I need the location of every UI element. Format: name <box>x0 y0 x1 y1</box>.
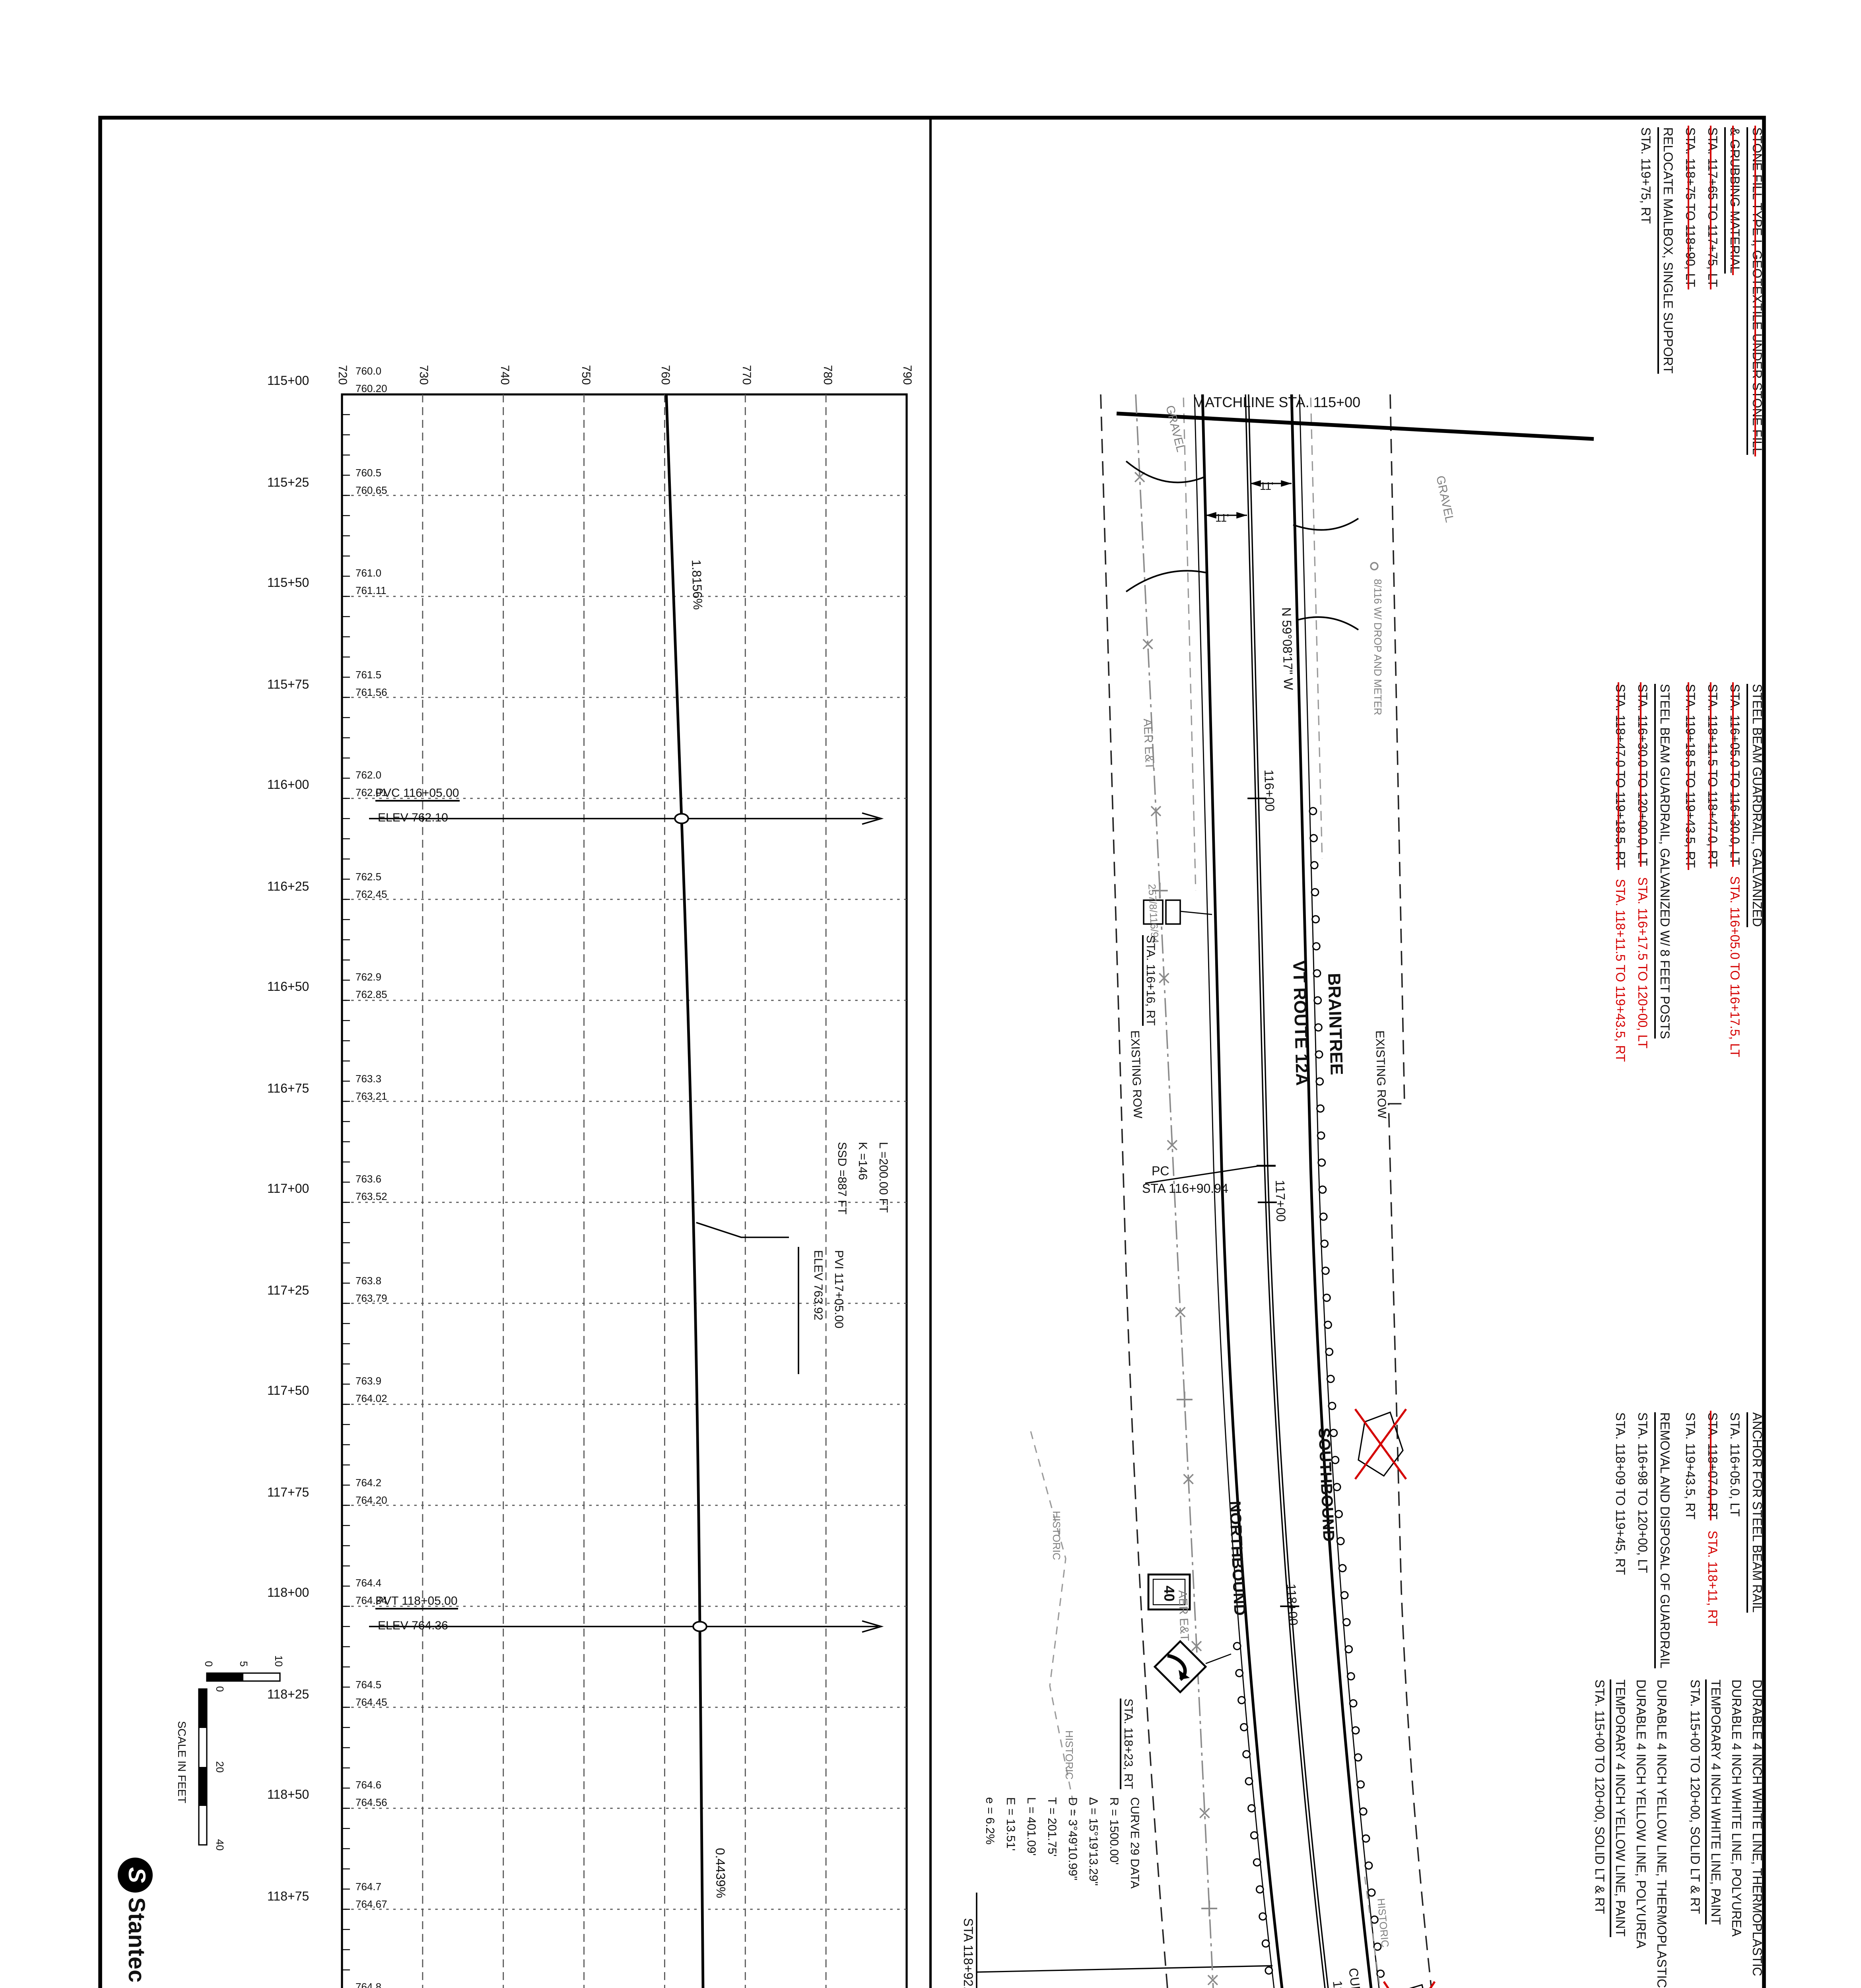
guardrail-8ft-posts-notes: STEEL BEAM GUARDRAIL, GALVANIZED W/ 8 FE… <box>1655 684 1670 1039</box>
profile-grid <box>342 394 907 1988</box>
anchor-notes-line: ANCHOR FOR STEEL BEAM RAIL <box>1747 1412 1762 1613</box>
yellow-line-notes-line: DURABLE 4 INCH YELLOW LINE, THERMOPLASTI… <box>1654 1679 1667 1988</box>
curve-data-row: T = 201.75' <box>1047 1797 1059 1857</box>
speed-limit-value: 40 <box>1161 1586 1175 1602</box>
proposed-elevation: 761.56 <box>356 689 388 699</box>
profile-vscale-tick: 10 <box>272 1644 282 1667</box>
white-line-notes-line: DURABLE 4 INCH WHITE LINE, THERMOPLASTIC <box>1750 1679 1762 1976</box>
proposed-elevation: 764.45 <box>356 1699 388 1709</box>
proposed-elevation: 764.20 <box>356 1497 388 1507</box>
pc-station-label: STA 116+90.94 <box>1142 1183 1228 1196</box>
guardrail-8ft-posts-notes-line: STA. 118+11.5 TO 119+43.5, RT <box>1613 879 1626 1062</box>
proposed-elevation: 764.56 <box>356 1800 388 1810</box>
station-116: 116+00 <box>1261 769 1275 812</box>
elev-axis-left: 730 <box>418 340 430 385</box>
stone-fill-notes-line: STONE FILL TYPE I, GEOTEXTILE UNDER STON… <box>1747 127 1762 455</box>
white-line-notes-line: DURABLE 4 INCH WHITE LINE, POLYUREA <box>1729 1679 1742 1937</box>
removal-notes: STA. 118+09 TO 119+45, RT <box>1613 1412 1626 1575</box>
station-117: 117+00 <box>1272 1180 1286 1222</box>
yellow-line-notes: DURABLE 4 INCH YELLOW LINE, THERMOPLASTI… <box>1654 1679 1667 1988</box>
anchor-notes: ANCHOR FOR STEEL BEAM RAIL <box>1747 1412 1762 1613</box>
profile-station-label: 117+00 <box>267 1183 309 1196</box>
existing-elevation: 762.9 <box>356 974 382 984</box>
profile-station-label: 116+00 <box>267 779 309 792</box>
yellow-line-notes-line: TEMPORARY 4 INCH YELLOW LINE, PAINT <box>1610 1679 1626 1937</box>
yellow-line-notes-line: STA. 115+00 TO 120+00, SOLID LT & RT <box>1592 1679 1605 1914</box>
stone-fill-notes: RELOCATE MAILBOX, SINGLE SUPPORT <box>1658 127 1673 373</box>
existing-elevation: 764.7 <box>356 1883 382 1893</box>
stone-fill-notes-line: STA. 119+75, RT <box>1638 127 1651 224</box>
profile-station-label: 117+25 <box>267 1284 309 1297</box>
white-line-notes: DURABLE 4 INCH WHITE LINE, THERMOPLASTIC <box>1750 1679 1762 1976</box>
lane-width-dim: 11' <box>1215 514 1229 525</box>
proposed-elevation: 763.21 <box>356 1093 388 1103</box>
existing-elevation: 764.2 <box>356 1479 382 1489</box>
sign-callout-116: STA. 116+16, RT <box>1143 935 1157 1026</box>
profile-station-label: 118+75 <box>267 1890 309 1903</box>
existing-elevation: 761.0 <box>356 570 382 580</box>
profile-station-label: 116+75 <box>267 1082 309 1095</box>
profile-scale-tick: 0 <box>213 1686 223 1692</box>
profile-station-label: 115+00 <box>267 375 309 388</box>
stantec-logo: S Stantec <box>118 1858 153 1983</box>
profile-station-label: 118+50 <box>267 1789 309 1802</box>
stantec-logo-text: Stantec <box>122 1897 148 1983</box>
existing-elevation: 761.5 <box>356 671 382 681</box>
pvi-callout-elev: ELEV 763.92 <box>813 1250 825 1320</box>
profile-station-label: 116+25 <box>267 880 309 893</box>
anchor-notes: STA. 118+07.0, RTSTA. 118+11, RT <box>1705 1412 1718 1626</box>
existing-elevation: 763.8 <box>356 1277 382 1287</box>
vc-callout-elev: ELEV 762.10 <box>379 812 449 823</box>
guardrail-galvanized-notes: STA. 119+18.5 TO 119+43.5, RT <box>1683 684 1696 868</box>
stantec-logo-icon: S <box>118 1858 153 1893</box>
guardrail-galvanized-notes-line: STA. 116+05.0 TO 116+30.0, LT <box>1727 684 1740 865</box>
curve-data-row: Δ = 15°19'13.29" <box>1088 1797 1100 1886</box>
profile-vscale-tick: 5 <box>237 1644 247 1667</box>
existing-elevation: 763.9 <box>356 1378 382 1388</box>
guardrail-8ft-posts-notes-line: STA. 116+17.5 TO 120+00, LT <box>1635 877 1648 1048</box>
stone-fill-notes: STA. 119+75, RT <box>1638 127 1651 224</box>
existing-elevation: 762.0 <box>356 772 382 782</box>
grade-percent: 0.4439% <box>713 1848 726 1898</box>
pvi-callout: PVI 117+05.00 <box>833 1250 845 1328</box>
profile-station-label: 115+50 <box>267 577 309 590</box>
yellow-line-notes: TEMPORARY 4 INCH YELLOW LINE, PAINT <box>1610 1679 1626 1937</box>
service-drop-label: 8/116 W/ DROP AND METER <box>1371 579 1381 715</box>
guardrail-galvanized-notes: STA. 116+05.0 TO 116+30.0, LTSTA. 116+05… <box>1727 684 1740 1057</box>
profile-station-label: 116+50 <box>267 981 309 994</box>
vc-data: K =146 <box>857 1142 869 1180</box>
guardrail-8ft-posts-notes: STA. 116+30.0 TO 120+00.0, LTSTA. 116+17… <box>1635 684 1648 1048</box>
removal-notes-line: STA. 116+98 TO 120+00, LT <box>1635 1412 1648 1573</box>
anchor-notes-line: STA. 119+43.5, RT <box>1683 1412 1696 1520</box>
anchor-notes-line: STA. 118+11, RT <box>1705 1531 1718 1626</box>
stone-fill-notes-line: STA. 118+75 TO 118+90, LT <box>1683 127 1696 287</box>
vc-data: L =200.00 FT <box>878 1142 890 1213</box>
profile-station-label: 118+00 <box>267 1587 309 1600</box>
existing-elevation: 764.6 <box>356 1782 382 1792</box>
vc-callout-elev: ELEV 764.36 <box>379 1619 449 1631</box>
profile-scale-tick: 40 <box>213 1839 223 1851</box>
removal-notes-line: REMOVAL AND DISPOSAL OF GUARDRAIL <box>1655 1412 1670 1668</box>
stone-fill-notes-line: RELOCATE MAILBOX, SINGLE SUPPORT <box>1658 127 1673 373</box>
proposed-elevation: 762.85 <box>356 992 388 1002</box>
profile-station-label: 117+75 <box>267 1486 309 1499</box>
elev-axis-left: 750 <box>579 340 591 385</box>
stone-fill-notes: STA. 118+75 TO 118+90, LT <box>1683 127 1696 287</box>
proposed-elevation: 760.20 <box>356 386 388 396</box>
guardrail-galvanized-notes: STEEL BEAM GUARDRAIL, GALVANIZED <box>1747 684 1762 927</box>
elev-axis-left: 760 <box>660 340 672 385</box>
aer-et-label: AER E&T <box>1177 1590 1191 1642</box>
existing-elevation: 764.8 <box>356 1984 382 1988</box>
existing-elevation: 764.4 <box>356 1580 382 1590</box>
guardrail-galvanized-notes-line: STA. 118+11.5 TO 118+47.0, RT <box>1705 684 1718 867</box>
white-line-notes: STA. 115+00 TO 120+00, SOLID LT & RT <box>1688 1679 1700 1914</box>
guardrail-8ft-posts-notes-line: STA. 116+30.0 TO 120+00.0, LT <box>1635 684 1648 866</box>
curve-data-row: e = 6.2% <box>985 1797 997 1844</box>
anchor-notes-line: STA. 116+05.0, LT <box>1727 1412 1740 1516</box>
vc-callout: PVC 116+05.00 <box>376 787 460 801</box>
existing-elevation: 762.5 <box>356 873 382 883</box>
profile-station-label: 117+50 <box>267 1385 309 1398</box>
guardrail-galvanized-notes: STA. 118+11.5 TO 118+47.0, RT <box>1705 684 1718 867</box>
profile-vscale-tick: 0 <box>202 1644 212 1667</box>
proposed-elevation: 761.11 <box>356 588 387 598</box>
elev-axis-left: 790 <box>902 340 914 385</box>
profile-station-label: 118+25 <box>267 1688 309 1701</box>
pi-station-label: STA 118+92.69 <box>961 1918 973 1988</box>
elev-axis-left: 740 <box>499 340 511 385</box>
profile-scale-caption: SCALE IN FEET <box>175 1721 186 1804</box>
guardrail-galvanized-notes-line: STA. 116+05.0 TO 116+17.5, LT <box>1727 876 1740 1057</box>
stone-fill-notes: & GRUBBING MATERIAL <box>1725 127 1740 274</box>
pc-label: PC <box>1152 1166 1169 1178</box>
proposed-elevation: 760.65 <box>356 487 388 497</box>
vc-callout: PVT 118+05.00 <box>376 1595 458 1609</box>
guardrail-galvanized-notes-line: STEEL BEAM GUARDRAIL, GALVANIZED <box>1747 684 1762 927</box>
anchor-notes-line: STA. 118+07.0, RT <box>1705 1412 1718 1520</box>
proposed-elevation: 763.79 <box>356 1295 388 1305</box>
curve-data-row: D = 3°49'10.99" <box>1067 1797 1079 1880</box>
white-line-notes-line: STA. 115+00 TO 120+00, SOLID LT & RT <box>1688 1679 1700 1914</box>
profile-scale-tick: 20 <box>213 1761 223 1773</box>
proposed-elevation: 764.02 <box>356 1396 388 1406</box>
existing-elevation: 760.0 <box>356 368 382 379</box>
profile-station-label: 115+75 <box>267 678 309 691</box>
stone-fill-notes-line: & GRUBBING MATERIAL <box>1725 127 1740 274</box>
route-label: VT ROUTE 12A <box>1288 960 1309 1086</box>
profile-station-label: 115+25 <box>267 476 309 489</box>
removal-notes: REMOVAL AND DISPOSAL OF GUARDRAIL <box>1655 1412 1670 1668</box>
sign-callout-118: STA. 118+23, RT <box>1121 1699 1135 1789</box>
stone-fill-notes-line: STA. 117+65 TO 117+75, LT <box>1705 127 1718 287</box>
vc-data: SSD =887 FT <box>837 1142 849 1215</box>
curve-data-row: L = 401.09' <box>1026 1797 1038 1856</box>
existing-elevation: 760.5 <box>356 469 382 480</box>
elev-axis-left: 770 <box>740 340 752 385</box>
existing-elevation: 763.6 <box>356 1176 382 1186</box>
yellow-line-notes: DURABLE 4 INCH YELLOW LINE, POLYUREA <box>1634 1679 1646 1948</box>
lane-width-dim: 11' <box>1260 482 1273 493</box>
yellow-line-notes-line: DURABLE 4 INCH YELLOW LINE, POLYUREA <box>1634 1679 1646 1948</box>
anchor-notes: STA. 116+05.0, LT <box>1727 1412 1740 1516</box>
existing-elevation: 764.5 <box>356 1681 382 1691</box>
stone-fill-notes: STA. 117+65 TO 117+75, LT <box>1705 127 1718 287</box>
white-line-notes-line: TEMPORARY 4 INCH WHITE LINE, PAINT <box>1706 1679 1721 1925</box>
existing-row-label: EXISTING ROW <box>1374 1030 1389 1118</box>
curve-data-row: R = 1500.00' <box>1109 1797 1121 1865</box>
proposed-elevation: 763.52 <box>356 1194 388 1204</box>
curve-warning-sign <box>1155 1641 1206 1692</box>
guardrail-8ft-posts-notes: STA. 118+47.0 TO 119+18.5, RTSTA. 118+11… <box>1613 684 1626 1062</box>
white-line-notes: TEMPORARY 4 INCH WHITE LINE, PAINT <box>1706 1679 1721 1925</box>
historic-label: HISTORIC <box>1063 1730 1073 1780</box>
guardrail-galvanized-notes-line: STA. 119+18.5 TO 119+43.5, RT <box>1683 684 1696 868</box>
curve-data-row: CURVE 29 DATA <box>1129 1797 1141 1889</box>
removal-notes: STA. 116+98 TO 120+00, LT <box>1635 1412 1648 1573</box>
plan-profile-sheet: STONE FILL TYPE I, GEOTEXTILE UNDER STON… <box>0 0 1861 1988</box>
white-line-notes: DURABLE 4 INCH WHITE LINE, POLYUREA <box>1729 1679 1742 1937</box>
anchor-notes: STA. 119+43.5, RT <box>1683 1412 1696 1520</box>
screenshot-root: { "title_block": { "project_name_label":… <box>0 0 1861 1988</box>
proposed-elevation: 764.67 <box>356 1901 388 1911</box>
guardrail-8ft-posts-notes-line: STEEL BEAM GUARDRAIL, GALVANIZED W/ 8 FE… <box>1655 684 1670 1039</box>
aer-et-label: AER E&T <box>1142 718 1156 770</box>
yellow-line-notes: STA. 115+00 TO 120+00, SOLID LT & RT <box>1592 1679 1605 1914</box>
stone-fill-notes: STONE FILL TYPE I, GEOTEXTILE UNDER STON… <box>1747 127 1762 455</box>
curve-data-row: E = 13.51' <box>1005 1797 1017 1851</box>
existing-elevation: 763.3 <box>356 1075 382 1085</box>
matchline-115-label: MATCHLINE STA. 115+00 <box>1193 396 1360 410</box>
removal-notes-line: STA. 118+09 TO 119+45, RT <box>1613 1412 1626 1575</box>
small-sign-icon <box>1166 900 1180 924</box>
grade-percent: 1.8156% <box>689 559 703 610</box>
station-118: 118+00 <box>1284 1583 1298 1626</box>
historic-label: HISTORIC <box>1050 1511 1060 1560</box>
elev-axis-left: 780 <box>821 340 833 385</box>
bearing-label: N 59°08'17" W <box>1279 607 1294 690</box>
elev-axis-left: 720 <box>337 340 349 385</box>
existing-row-label: EXISTING ROW <box>1129 1030 1144 1119</box>
town-label: BRAINTREE <box>1323 973 1344 1076</box>
guardrail-8ft-posts-notes-line: STA. 118+47.0 TO 119+18.5, RT <box>1613 684 1626 868</box>
proposed-elevation: 762.45 <box>356 891 388 901</box>
